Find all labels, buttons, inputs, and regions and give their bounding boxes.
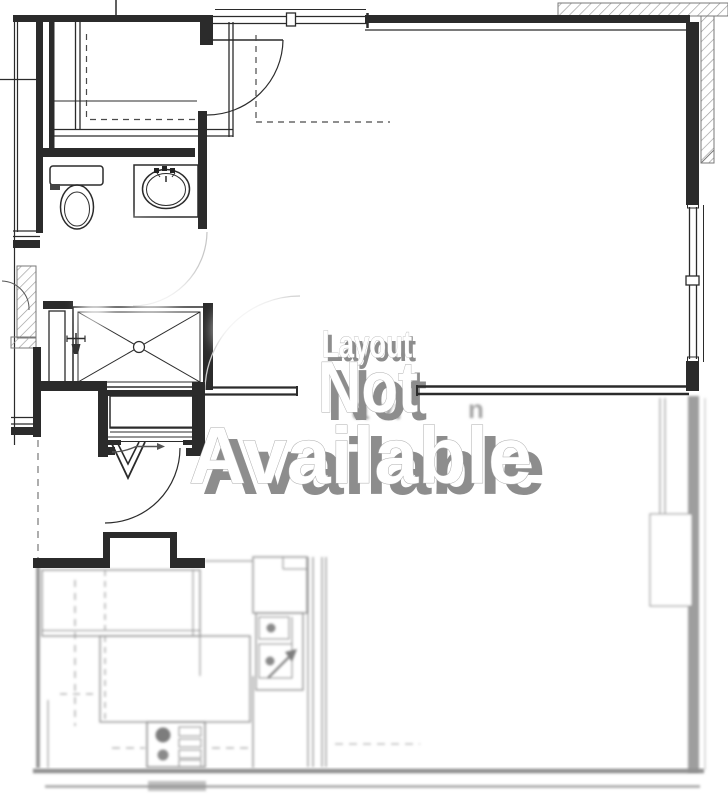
appliance-closet-outline (650, 514, 692, 606)
floor-plan-screenshot: a vi n Layout Layout Not Not Available A… (0, 0, 728, 800)
floor-plan-svg: a vi n Layout Layout Not Not Available A… (0, 0, 728, 800)
bathroom-right-wall (198, 111, 207, 229)
watermark-line3: Available (189, 411, 532, 500)
